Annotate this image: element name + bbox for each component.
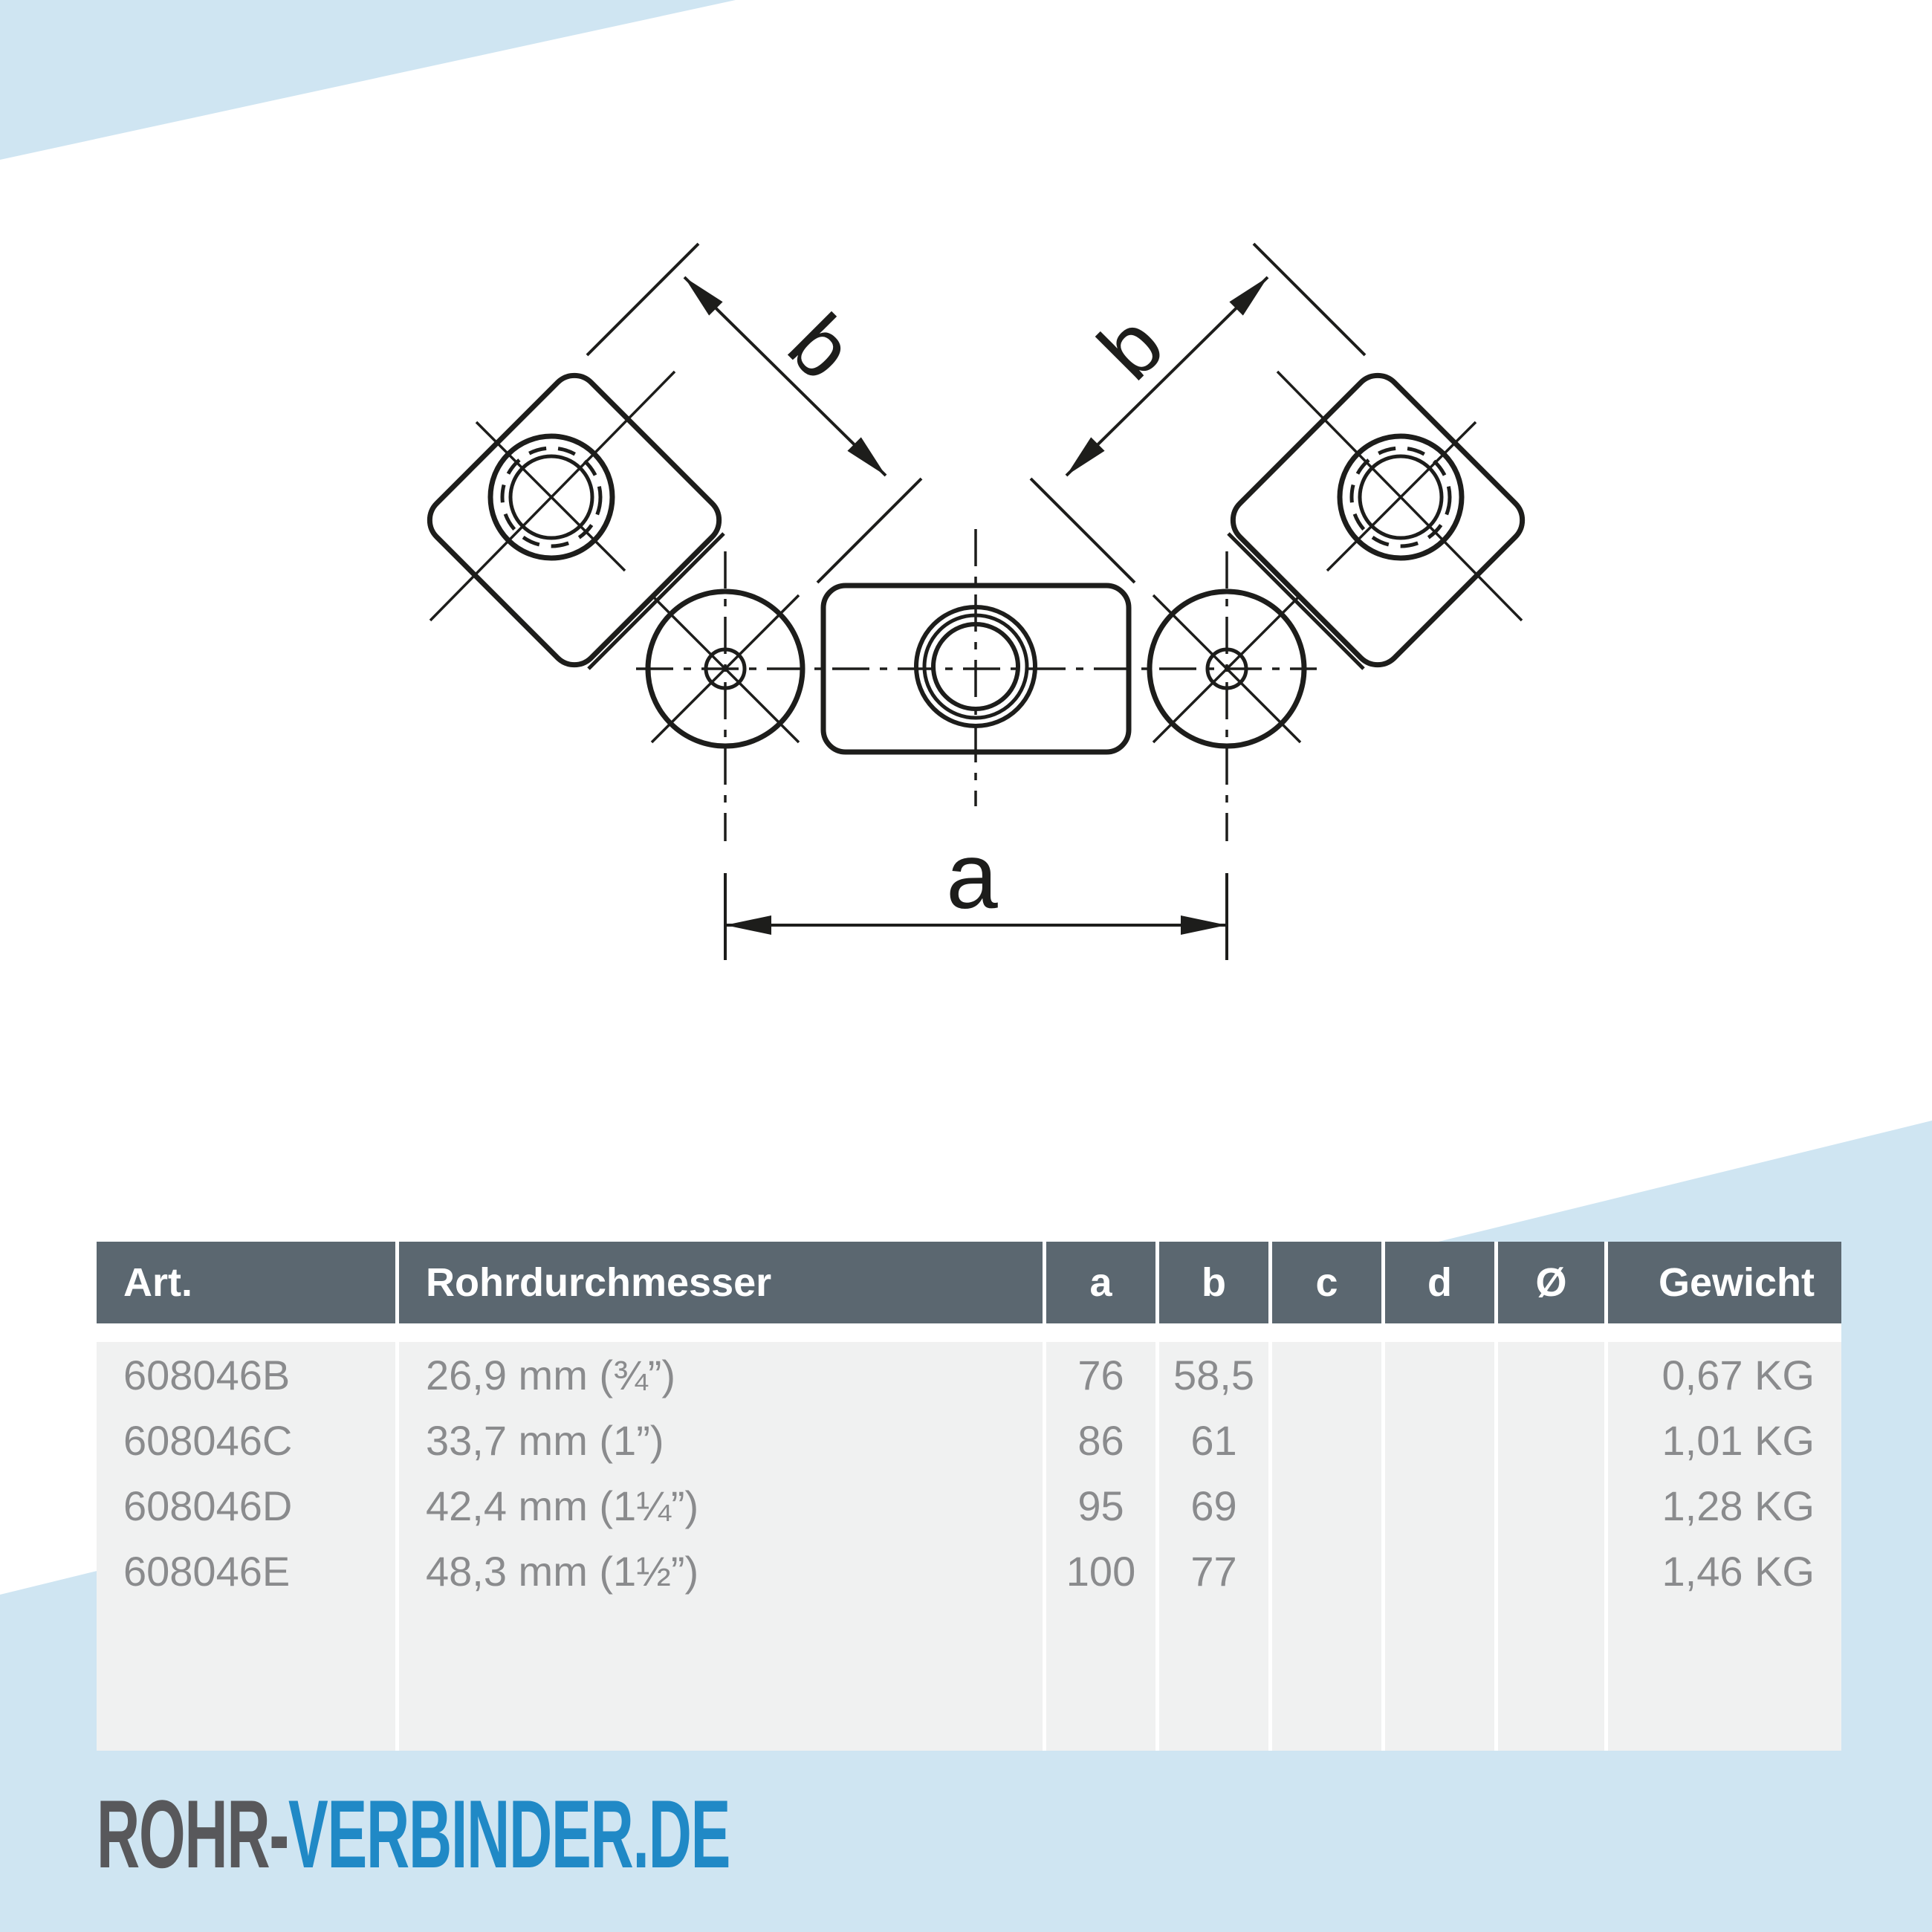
cell-d <box>1385 1342 1494 1407</box>
spec-table: Art. Rohrdurchmesser a b c d Ø Gewicht 6… <box>97 1242 1841 1751</box>
cell-rohrdurchmesser: 26,9 mm (¾”) <box>399 1342 1043 1407</box>
header-b: b <box>1159 1242 1268 1323</box>
witness-line <box>587 244 698 355</box>
cell-gewicht: 1,28 KG <box>1608 1473 1841 1538</box>
cell-a: 76 <box>1046 1342 1155 1407</box>
header-gewicht: Gewicht <box>1608 1242 1841 1323</box>
cell-a: 95 <box>1046 1473 1155 1538</box>
cell-b: 77 <box>1159 1538 1268 1604</box>
filler-cell <box>399 1604 1043 1751</box>
header-art: Art. <box>97 1242 395 1323</box>
cell-d <box>1385 1473 1494 1538</box>
header-a: a <box>1046 1242 1155 1323</box>
logo-prefix: ROHR- <box>97 1780 288 1888</box>
logo-suffix: VERBINDER.DE <box>288 1780 730 1888</box>
cell-c <box>1272 1342 1381 1407</box>
arrowhead <box>725 915 771 935</box>
cell-gewicht: 1,46 KG <box>1608 1538 1841 1604</box>
witness-line <box>1031 479 1135 583</box>
cell-a: 86 <box>1046 1407 1155 1473</box>
cell-c <box>1272 1473 1381 1538</box>
dimension-b-right-label: b <box>1080 296 1181 398</box>
cell-c <box>1272 1538 1381 1604</box>
cell-diameter <box>1498 1473 1604 1538</box>
cell-b: 58,5 <box>1159 1342 1268 1407</box>
header-rohrdurchmesser: Rohrdurchmesser <box>399 1242 1043 1323</box>
filler-cell <box>1272 1604 1381 1751</box>
dimension-a-label: a <box>946 825 998 928</box>
cell-diameter <box>1498 1407 1604 1473</box>
filler-cell <box>1608 1604 1841 1751</box>
arrowhead <box>1181 915 1227 935</box>
witness-line <box>817 479 921 583</box>
cell-rohrdurchmesser: 48,3 mm (1½”) <box>399 1538 1043 1604</box>
cell-diameter <box>1498 1538 1604 1604</box>
cell-a: 100 <box>1046 1538 1155 1604</box>
cell-art: 608046B <box>97 1342 395 1407</box>
dimension-b-left: b <box>587 244 921 583</box>
cell-gewicht: 1,01 KG <box>1608 1407 1841 1473</box>
filler-cell <box>1498 1604 1604 1751</box>
dimension-b-left-label: b <box>771 296 872 398</box>
cell-d <box>1385 1407 1494 1473</box>
filler-cell <box>97 1604 395 1751</box>
cell-d <box>1385 1538 1494 1604</box>
brand-logo: ROHR-VERBINDER.DE <box>97 1789 730 1878</box>
page-canvas: b b a Art. Rohrdurchmesser a b c <box>0 0 1932 1932</box>
filler-cell <box>1159 1604 1268 1751</box>
filler-cell <box>1385 1604 1494 1751</box>
cell-rohrdurchmesser: 33,7 mm (1”) <box>399 1407 1043 1473</box>
cell-art: 608046D <box>97 1473 395 1538</box>
cell-art: 608046C <box>97 1407 395 1473</box>
cell-gewicht: 0,67 KG <box>1608 1342 1841 1407</box>
header-c: c <box>1272 1242 1381 1323</box>
cell-rohrdurchmesser: 42,4 mm (1¼”) <box>399 1473 1043 1538</box>
table-body: 608046B 26,9 mm (¾”) 76 58,5 0,67 KG 608… <box>97 1327 1841 1751</box>
table-header-row: Art. Rohrdurchmesser a b c d Ø Gewicht <box>97 1242 1841 1323</box>
cell-art: 608046E <box>97 1538 395 1604</box>
cell-b: 61 <box>1159 1407 1268 1473</box>
header-d: d <box>1385 1242 1494 1323</box>
cell-c <box>1272 1407 1381 1473</box>
dimension-a: a <box>725 825 1227 960</box>
cell-diameter <box>1498 1342 1604 1407</box>
header-diameter: Ø <box>1498 1242 1604 1323</box>
filler-cell <box>1046 1604 1155 1751</box>
witness-line <box>1254 244 1365 355</box>
cell-b: 69 <box>1159 1473 1268 1538</box>
dimension-b-right: b <box>1031 244 1365 583</box>
